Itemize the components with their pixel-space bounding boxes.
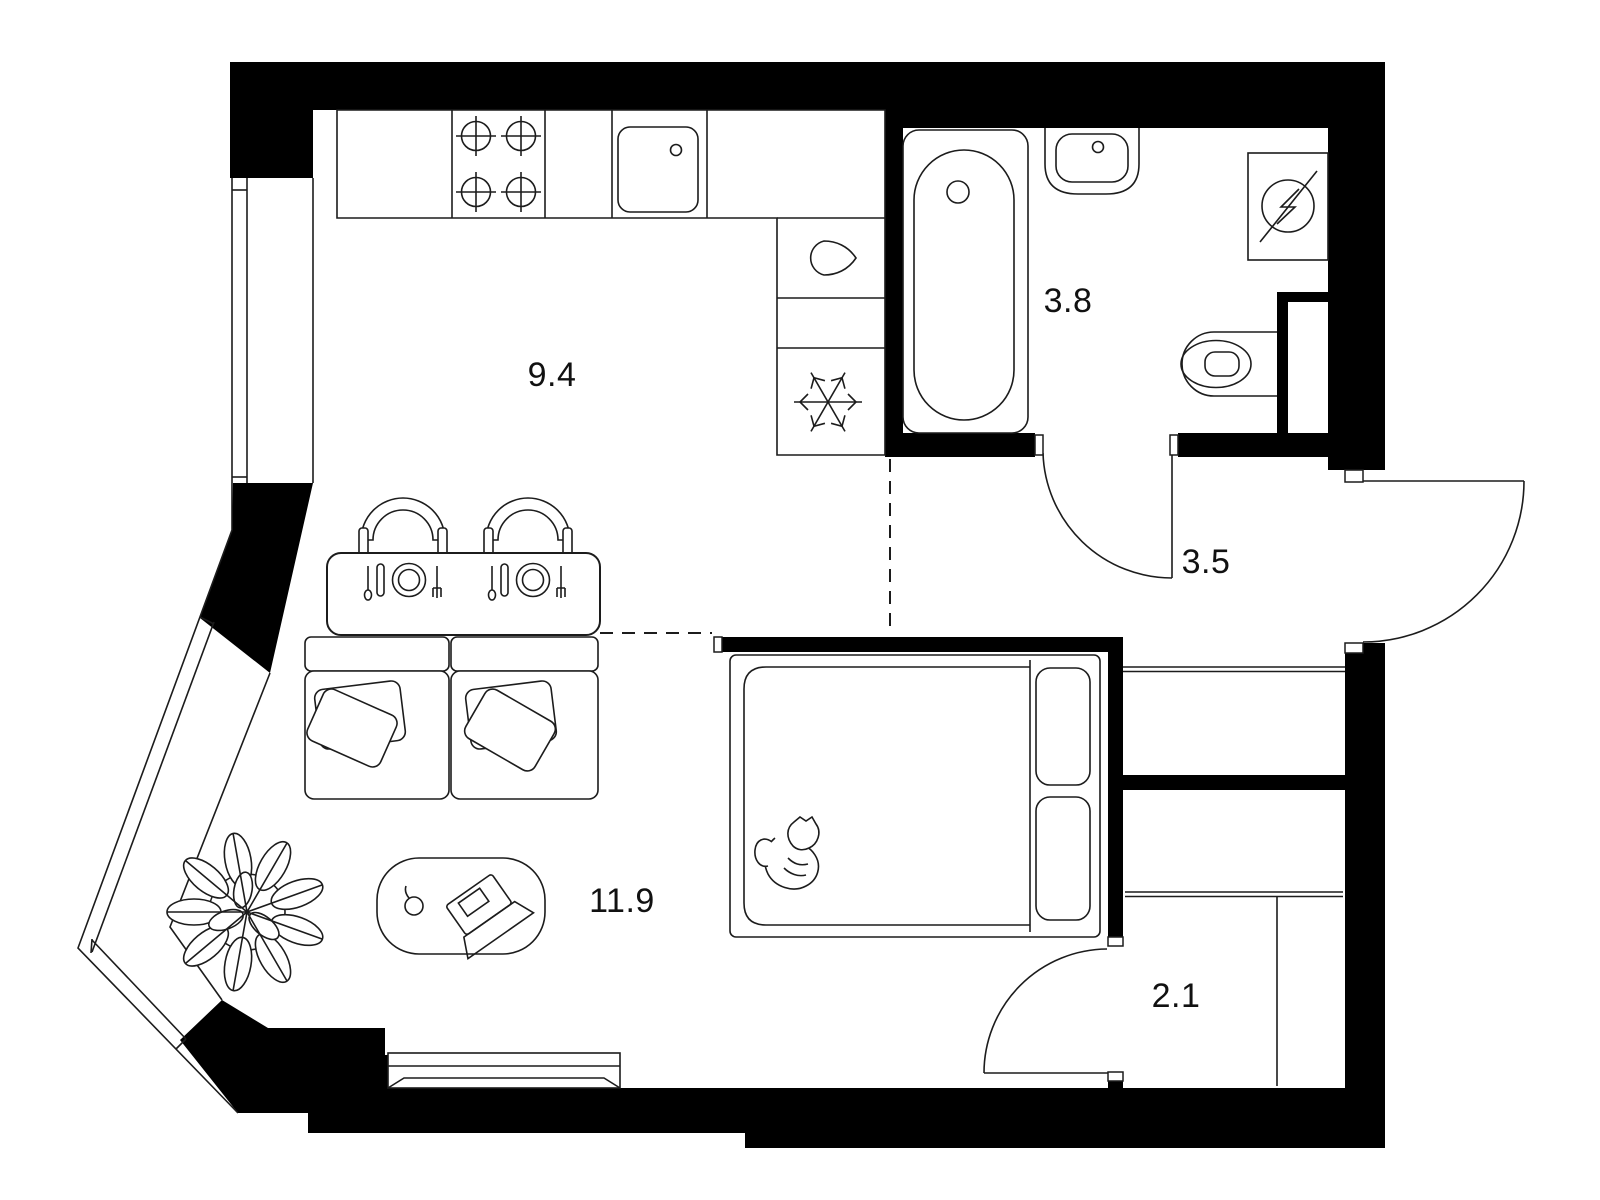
chair-1 — [359, 498, 447, 555]
wardrobe-door-swing — [984, 949, 1107, 1073]
bed-pillow-2 — [1036, 797, 1090, 920]
entry-door-swing — [1363, 481, 1524, 642]
bathroom-door-swing — [1043, 453, 1172, 578]
bathroom-door-jamb-left — [1035, 435, 1043, 455]
shaft-wall-top — [1277, 292, 1328, 302]
window-sill — [388, 1053, 620, 1088]
wardrobe-door-jamb-bottom — [1108, 1072, 1123, 1081]
chair-2 — [484, 498, 572, 555]
room-label-bathroom: 3.8 — [1044, 282, 1093, 320]
room-label-hallway: 3.5 — [1182, 543, 1231, 581]
floor-plan: 9.4 3.8 3.5 11.9 2.1 — [0, 0, 1600, 1200]
wall-bathroom-top — [885, 62, 1385, 128]
washbasin-icon — [1045, 128, 1139, 194]
bathtub-icon — [903, 130, 1028, 433]
entry-door-arc — [1345, 470, 1524, 653]
wall-right-lower — [1345, 643, 1385, 1148]
window-corner-tick — [91, 939, 92, 953]
wardrobe-door-arc — [984, 937, 1123, 1081]
entry-door-jamb-top — [1345, 470, 1363, 482]
floor-plan-page: 9.4 3.8 3.5 11.9 2.1 — [0, 0, 1600, 1200]
desk — [377, 858, 545, 959]
toilet-icon — [1181, 332, 1277, 396]
kitchen-sink-icon — [618, 127, 698, 212]
freezer-snowflake-icon — [794, 373, 862, 432]
closet-lines — [1123, 667, 1345, 1086]
wardrobe-door-jamb-top — [1108, 937, 1123, 946]
room-label-kitchen: 9.4 — [528, 356, 577, 394]
wall-kitchen-bathroom — [885, 110, 903, 433]
bathroom-door-jamb-right — [1170, 435, 1178, 455]
sofa-icon — [304, 637, 598, 799]
kettle-icon — [811, 241, 856, 275]
counter-outline — [337, 110, 885, 455]
shaft-wall-left — [1277, 292, 1288, 457]
bathroom-fixtures — [903, 128, 1328, 433]
wall-closet — [1123, 775, 1345, 790]
zone-divider-dashed — [600, 459, 890, 635]
wall-bedroom-right — [1108, 652, 1123, 937]
stove-burners-icon — [456, 116, 541, 212]
kitchen-counter — [337, 110, 885, 455]
wall-right-upper — [1328, 62, 1385, 470]
dining-set — [327, 498, 600, 635]
bed-pillow-1 — [1036, 668, 1090, 785]
wall-left-top-block — [230, 62, 313, 178]
sofa-back-2 — [451, 637, 598, 671]
window-diagonal-lower-glass — [92, 940, 186, 1039]
wall-bathroom-bottom-right — [1178, 433, 1345, 457]
entry-door-jamb-bottom — [1345, 643, 1363, 653]
washing-machine-icon — [1248, 153, 1328, 260]
bedroom-wall-end-cap — [714, 637, 722, 652]
room-label-living-room: 11.9 — [589, 882, 655, 920]
dining-table-icon — [327, 553, 600, 635]
sill-body — [388, 1053, 620, 1088]
room-label-wardrobe: 2.1 — [1152, 977, 1201, 1015]
wall-bedroom-top — [722, 637, 1123, 652]
wall-bathroom-bottom-left — [885, 433, 1035, 457]
sofa-back-1 — [305, 637, 449, 671]
wall-bottom — [180, 1000, 1385, 1148]
wall-pier-upper — [200, 483, 313, 673]
outer-boundary-line — [78, 178, 238, 1113]
plant-icon — [167, 831, 327, 993]
double-bed-icon — [730, 655, 1100, 937]
bathroom-door-arc — [1035, 435, 1178, 578]
